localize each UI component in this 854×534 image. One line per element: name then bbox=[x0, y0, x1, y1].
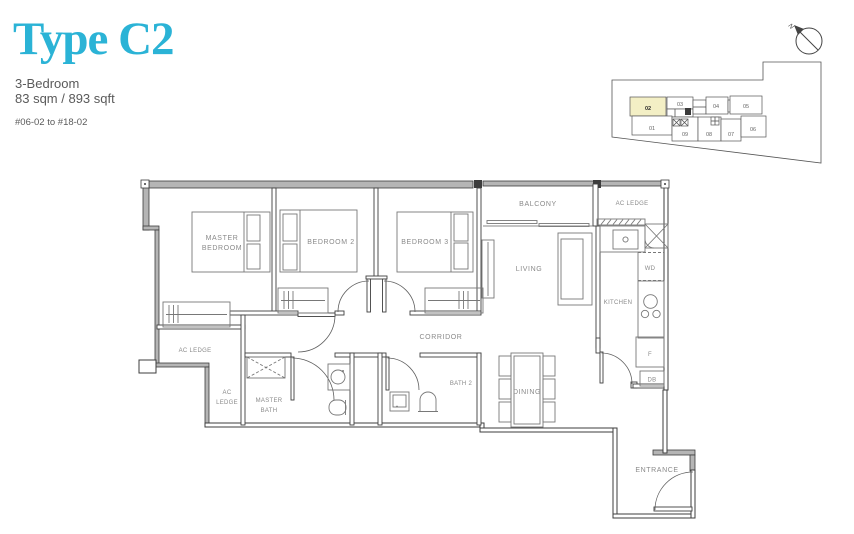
wall-bottom-west bbox=[205, 423, 484, 427]
tap-dot bbox=[396, 406, 398, 408]
chair bbox=[543, 379, 555, 399]
subtitle-bedrooms: 3-Bedroom bbox=[15, 76, 79, 91]
hob-burner-small bbox=[653, 310, 660, 317]
unit-label-03: 03 bbox=[677, 102, 683, 108]
unit-label-07: 07 bbox=[728, 132, 734, 138]
wall-ledge-jog bbox=[155, 363, 209, 367]
window-tick bbox=[601, 220, 605, 225]
wall-left-jog bbox=[143, 226, 159, 230]
tap-dot bbox=[342, 370, 344, 372]
wall-entrance-bottom bbox=[613, 514, 695, 518]
room-label-bedroom3: BEDROOM 3 bbox=[401, 239, 448, 246]
floor-plan-page: Type C2 3-Bedroom 83 sqm / 893 sqft #06-… bbox=[0, 0, 854, 534]
pillow bbox=[283, 214, 297, 241]
bath2-door-arc bbox=[388, 358, 420, 390]
wall-br2-br3 bbox=[374, 188, 378, 278]
room-label-master-bedroom: BEDROOM bbox=[202, 245, 242, 252]
sink-drain-icon bbox=[623, 237, 628, 242]
unit-label-04: 04 bbox=[713, 104, 719, 110]
label-fridge: F bbox=[648, 352, 652, 358]
chair bbox=[499, 402, 511, 422]
subtitle-area: 83 sqm / 893 sqft bbox=[15, 91, 115, 106]
sofa-seat bbox=[561, 239, 583, 299]
north-label: N bbox=[787, 22, 795, 30]
entrance-door-arc bbox=[655, 472, 693, 510]
wall-left-mid bbox=[155, 230, 159, 365]
compass-needle bbox=[800, 32, 818, 50]
wall-kitchen-east bbox=[664, 184, 668, 390]
hob-burner-small bbox=[641, 310, 648, 317]
door-pillar bbox=[366, 276, 387, 279]
chair bbox=[499, 379, 511, 399]
pillow bbox=[454, 214, 468, 241]
wall-dining-bottom bbox=[480, 428, 617, 432]
mbath-door-leaf bbox=[291, 357, 294, 400]
page-svg: Type C2 3-Bedroom 83 sqm / 893 sqft #06-… bbox=[0, 0, 854, 534]
wall-bath2-east bbox=[477, 353, 481, 425]
wall-dining-stub bbox=[596, 338, 600, 353]
window-tick bbox=[619, 220, 623, 225]
window-tick bbox=[607, 220, 611, 225]
room-label-balcony: BALCONY bbox=[519, 201, 557, 208]
wall-ledge-bath bbox=[241, 315, 245, 425]
room-label-master-bath: MASTER bbox=[256, 398, 283, 404]
header: Type C2 3-Bedroom 83 sqm / 893 sqft #06-… bbox=[13, 13, 174, 128]
wall-entrance-top bbox=[653, 450, 695, 455]
post-dot bbox=[144, 183, 146, 185]
room-labels: MASTER BEDROOM BEDROOM 2 BEDROOM 3 BALCO… bbox=[179, 201, 679, 474]
compass-arrowhead bbox=[794, 25, 804, 35]
unit-label-01: 01 bbox=[649, 126, 655, 132]
br2-door-arc bbox=[338, 281, 369, 312]
toilet-icon bbox=[420, 392, 436, 411]
room-label-ac-ledge-top: AC LEDGE bbox=[616, 201, 649, 207]
room-label-ac-ledge-lower: LEDGE bbox=[216, 400, 238, 406]
room-label-master-bedroom: MASTER bbox=[206, 235, 239, 242]
unit-label-02: 02 bbox=[645, 106, 651, 112]
pillow bbox=[454, 243, 468, 269]
chair bbox=[499, 356, 511, 376]
basin-icon bbox=[393, 395, 406, 407]
unit-range: #06-02 to #18-02 bbox=[15, 117, 87, 128]
site-key-plan: 02 03 04 05 01 09 08 07 06 bbox=[612, 62, 821, 163]
wall-corridor-south bbox=[420, 353, 481, 357]
unit-label-08: 08 bbox=[706, 132, 712, 138]
window-tick bbox=[637, 220, 641, 225]
label-db: DB bbox=[648, 378, 657, 384]
room-label-bedroom2: BEDROOM 2 bbox=[307, 239, 354, 246]
hob-counter bbox=[638, 281, 664, 338]
column-post bbox=[474, 180, 482, 188]
room-label-kitchen: KITCHEN bbox=[604, 300, 632, 306]
room-label-entrance: ENTRANCE bbox=[635, 467, 678, 474]
wall-passage-west bbox=[613, 428, 617, 518]
sliding-door-panel bbox=[487, 221, 537, 224]
pillow bbox=[247, 215, 260, 241]
room-label-bath2: BATH 2 bbox=[450, 381, 473, 387]
wall-kitchen-west bbox=[596, 226, 600, 348]
hob-burner-large bbox=[644, 295, 658, 309]
wall-bath2-west bbox=[378, 353, 382, 425]
chair bbox=[543, 402, 555, 422]
room-label-master-bath: BATH bbox=[261, 408, 278, 414]
toilet-icon bbox=[329, 400, 346, 415]
window-tick bbox=[613, 220, 617, 225]
wall-entrance-side bbox=[690, 455, 695, 471]
unit-label-05: 05 bbox=[743, 104, 749, 110]
br2-door-leaf bbox=[367, 279, 371, 312]
window-tick bbox=[625, 220, 629, 225]
wall-acledge-top bbox=[599, 181, 668, 186]
wall-br3-living bbox=[477, 188, 481, 312]
window-tick bbox=[631, 220, 635, 225]
post-dot bbox=[664, 183, 666, 185]
wall-mbr-br2 bbox=[272, 188, 276, 312]
mbr-door-arc bbox=[298, 315, 335, 352]
bath2-door-leaf bbox=[386, 357, 389, 390]
master-bed bbox=[192, 212, 270, 272]
chair bbox=[543, 356, 555, 376]
stair-core bbox=[685, 108, 691, 115]
wall-mbath-east bbox=[350, 353, 354, 425]
label-wd: WD bbox=[645, 266, 656, 272]
sofa-icon bbox=[558, 233, 592, 305]
room-label-living: LIVING bbox=[516, 266, 543, 273]
unit-label-06: 06 bbox=[750, 127, 756, 133]
unit-label-09: 09 bbox=[682, 132, 688, 138]
mbr-door-leaf bbox=[298, 313, 335, 317]
compass-icon: N bbox=[787, 22, 822, 54]
sliding-door-panel bbox=[539, 224, 589, 227]
kitchen-door-arc bbox=[602, 353, 633, 384]
wall-balcony-parapet bbox=[483, 181, 594, 186]
pillow bbox=[247, 244, 260, 269]
room-label-corridor: CORRIDOR bbox=[420, 334, 463, 341]
kitchen-sink bbox=[613, 230, 638, 249]
page-title: Type C2 bbox=[13, 13, 174, 65]
br3-door-arc bbox=[384, 281, 415, 312]
floor-plan bbox=[139, 180, 695, 518]
wall-left-lower bbox=[205, 367, 209, 425]
br3-door-leaf bbox=[383, 279, 387, 312]
pillow bbox=[283, 244, 297, 270]
room-label-ac-ledge-lower: AC bbox=[223, 390, 232, 396]
wall-corridor-north bbox=[335, 311, 344, 315]
wall-fin-box bbox=[139, 360, 156, 373]
room-label-ac-ledge-left: AC LEDGE bbox=[179, 348, 212, 354]
wall-top bbox=[143, 181, 473, 188]
basin-icon bbox=[331, 370, 345, 384]
wall-passage-east bbox=[663, 390, 667, 453]
wall-corridor-south bbox=[245, 353, 291, 357]
kitchen-door-leaf bbox=[600, 352, 603, 383]
room-label-dining: DINING bbox=[513, 389, 541, 396]
entrance-door-leaf bbox=[654, 507, 692, 511]
